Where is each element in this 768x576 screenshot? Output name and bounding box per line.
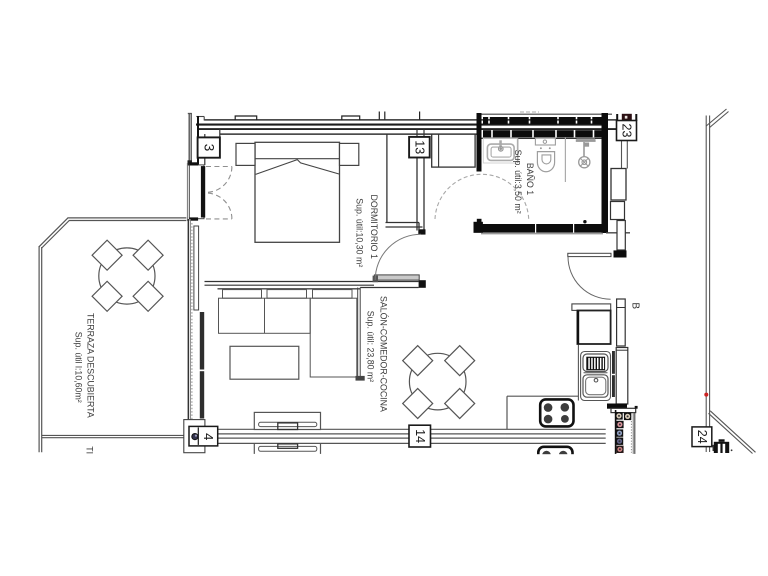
svg-text:4: 4: [201, 433, 216, 440]
svg-text:TI: TI: [85, 446, 95, 454]
svg-text:14: 14: [413, 429, 427, 443]
svg-text:24: 24: [695, 430, 709, 444]
svg-text:BAÑO 1: BAÑO 1: [525, 163, 535, 195]
svg-text:Sup. útil:10,30 m²: Sup. útil:10,30 m²: [355, 198, 365, 267]
svg-text:Sup. útil:3,50 m²: Sup. útil:3,50 m²: [513, 150, 523, 214]
svg-text:3: 3: [201, 144, 216, 152]
svg-text:DORMITORIO 1: DORMITORIO 1: [369, 195, 379, 259]
svg-text:TERRAZA DESCUBIERTA: TERRAZA DESCUBIERTA: [86, 313, 96, 418]
svg-text:Sup. útil l:10,60m²: Sup. útil l:10,60m²: [73, 332, 83, 403]
svg-text:23: 23: [620, 124, 634, 138]
svg-text:13: 13: [412, 140, 426, 154]
svg-text:SALÓN-COMEDOR-COCINA: SALÓN-COMEDOR-COCINA: [378, 296, 388, 412]
svg-text:Sup. útil: 23,80 m²: Sup. útil: 23,80 m²: [365, 311, 375, 382]
svg-text:B: B: [629, 302, 640, 309]
